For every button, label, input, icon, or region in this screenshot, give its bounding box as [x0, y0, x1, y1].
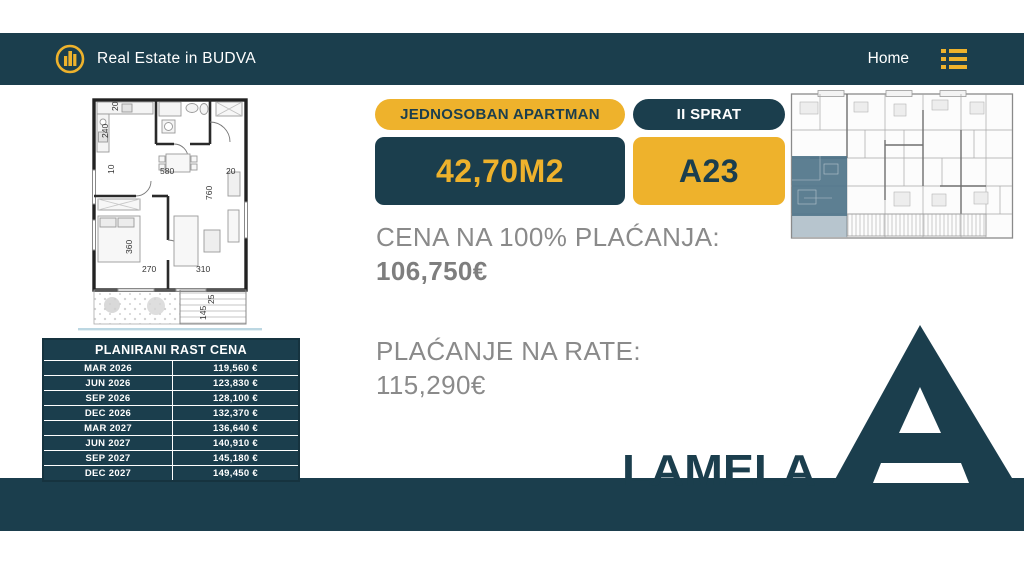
table-cell-month: DEC 2027: [44, 466, 173, 480]
lamela-letter-a: [833, 325, 1015, 488]
dim-label: 760: [204, 186, 214, 200]
brand-title: Real Estate in BUDVA: [97, 50, 256, 68]
floor-badge: II SPRAT: [633, 99, 785, 130]
dim-label: 25: [206, 294, 216, 304]
table-cell-price: 119,560 €: [173, 361, 298, 375]
table-row: SEP 2027 145,180 €: [44, 450, 298, 465]
dim-label: 270: [142, 264, 156, 274]
table-row: MAR 2026 119,560 €: [44, 360, 298, 375]
installment-price: 115,290€: [376, 370, 486, 401]
table-cell-price: 132,370 €: [173, 406, 298, 420]
list-menu-icon[interactable]: [941, 48, 967, 70]
table-row: DEC 2027 149,450 €: [44, 465, 298, 480]
home-link[interactable]: Home: [868, 50, 909, 68]
dim-label: 20: [226, 166, 236, 176]
page: Real Estate in BUDVA Home: [0, 0, 1024, 562]
dim-label: 20: [110, 101, 120, 111]
apartment-type-badge: JEDNOSOBAN APARTMAN: [375, 99, 625, 130]
table-cell-month: JUN 2027: [44, 436, 173, 450]
dim-label: 240: [100, 124, 110, 138]
table-cell-month: DEC 2026: [44, 406, 173, 420]
table-row: JUN 2026 123,830 €: [44, 375, 298, 390]
table-cell-month: SEP 2027: [44, 451, 173, 465]
dim-label: 360: [124, 240, 134, 254]
full-payment-price: 106,750€: [376, 256, 488, 287]
dim-label: 580: [160, 166, 174, 176]
table-row: DEC 2026 132,370 €: [44, 405, 298, 420]
table-cell-price: 140,910 €: [173, 436, 298, 450]
apartment-floor-plan-image: 20 240 10 580 20 760 360 270 310 145 25: [78, 92, 262, 332]
dim-label: 10: [106, 164, 116, 174]
area-box: 42,70M2: [375, 137, 625, 205]
table-cell-month: SEP 2026: [44, 391, 173, 405]
table-cell-price: 145,180 €: [173, 451, 298, 465]
building-plan-image: [790, 90, 1014, 242]
lamela-label: LAMELA: [622, 446, 816, 494]
table-cell-month: MAR 2026: [44, 361, 173, 375]
table-cell-price: 149,450 €: [173, 466, 298, 480]
lamela-wordmark: LAMELA: [622, 442, 820, 499]
dim-label: 310: [196, 264, 210, 274]
table-row: SEP 2026 128,100 €: [44, 390, 298, 405]
table-cell-month: MAR 2027: [44, 421, 173, 435]
table-cell-price: 123,830 €: [173, 376, 298, 390]
price-table-title: PLANIRANI RAST CENA: [44, 340, 298, 360]
table-cell-price: 128,100 €: [173, 391, 298, 405]
top-navbar: Real Estate in BUDVA Home: [0, 33, 1024, 85]
table-cell-month: JUN 2026: [44, 376, 173, 390]
buildings-in-circle-icon[interactable]: [55, 44, 85, 74]
unit-number-box: A23: [633, 137, 785, 205]
table-row: MAR 2027 136,640 €: [44, 420, 298, 435]
dim-label: 145: [198, 306, 208, 320]
table-cell-price: 136,640 €: [173, 421, 298, 435]
table-row: JUN 2027 140,910 €: [44, 435, 298, 450]
full-payment-label: CENA NA 100% PLAĆANJA:: [376, 222, 720, 253]
installment-label: PLAĆANJE NA RATE:: [376, 336, 641, 367]
price-growth-table: PLANIRANI RAST CENA MAR 2026 119,560 € J…: [42, 338, 300, 482]
